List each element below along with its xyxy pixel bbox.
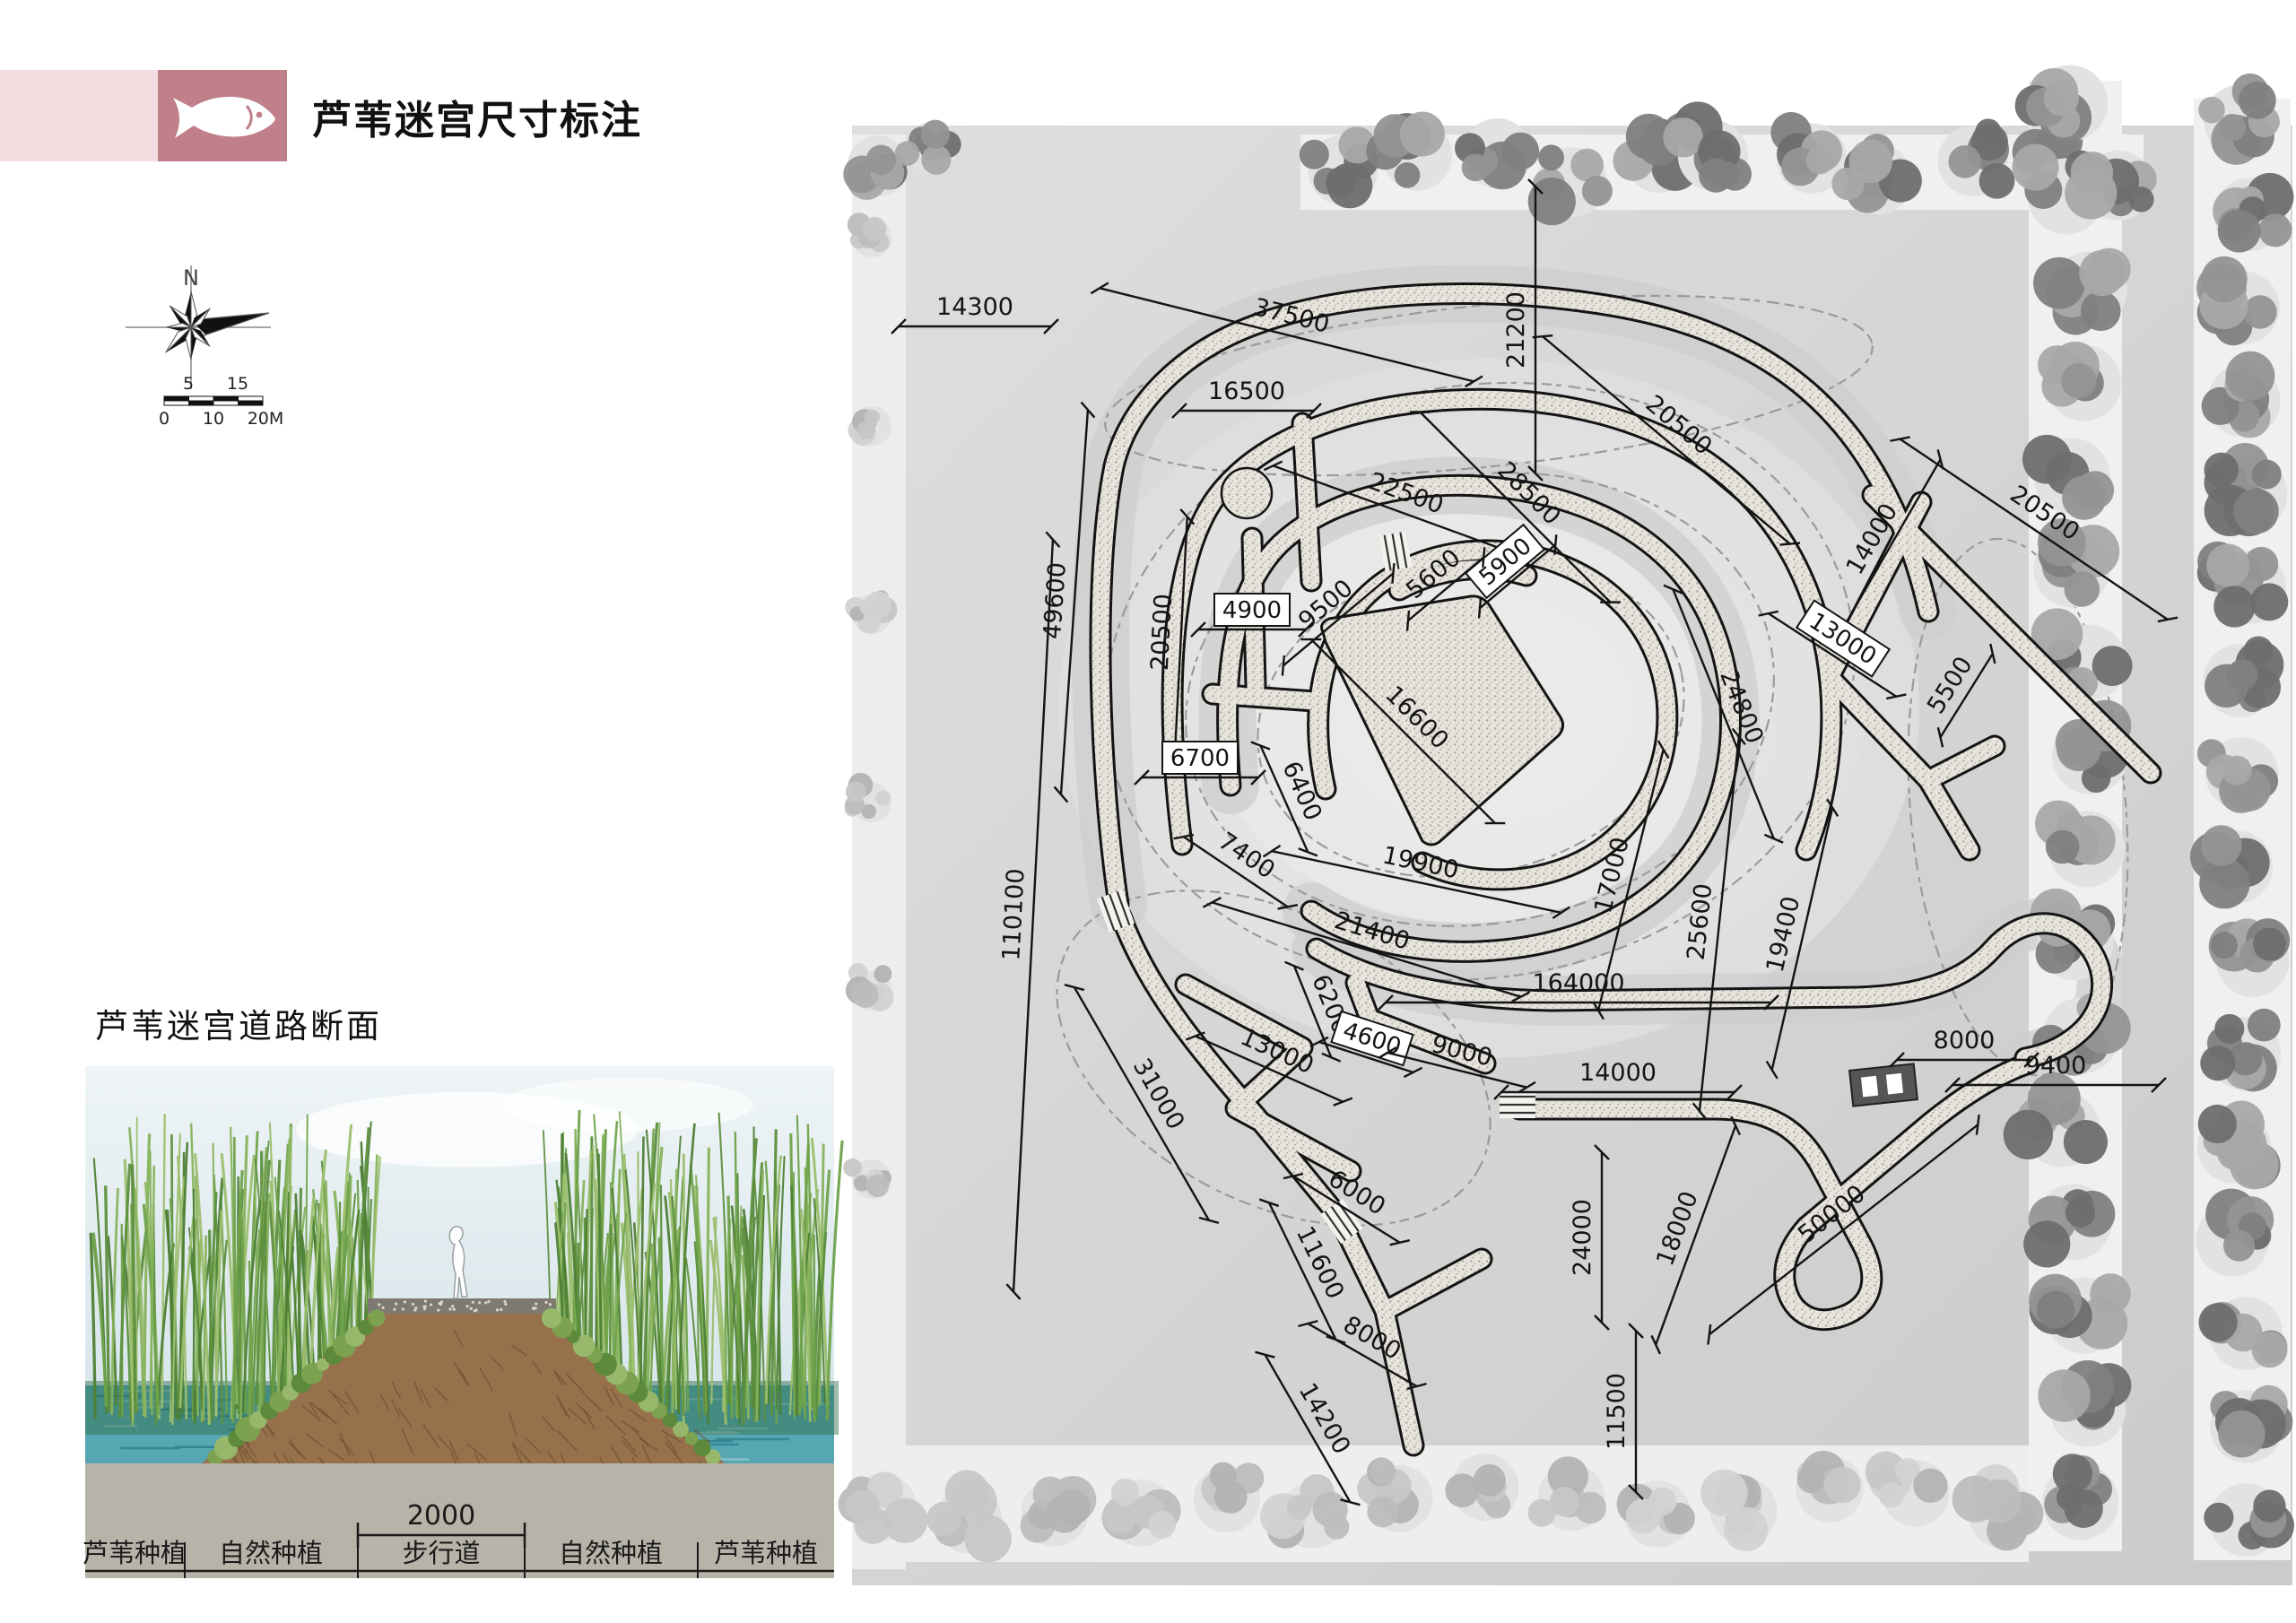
svg-text:4900: 4900 — [1222, 597, 1282, 624]
svg-text:16500: 16500 — [1208, 378, 1285, 405]
svg-text:20500: 20500 — [1146, 593, 1178, 671]
bridge-hatch — [1500, 1091, 1535, 1118]
cloud — [502, 1078, 753, 1132]
svg-text:9400: 9400 — [2025, 1052, 2087, 1080]
svg-text:8000: 8000 — [1934, 1027, 1996, 1055]
svg-text:24000: 24000 — [1569, 1199, 1596, 1276]
maze-plan: 1430037500212001650020500285002250059005… — [838, 65, 2294, 1586]
svg-text:110100: 110100 — [997, 868, 1030, 962]
tree-cluster — [843, 1159, 891, 1199]
svg-text:2000: 2000 — [407, 1500, 475, 1532]
svg-text:10: 10 — [203, 409, 224, 429]
compass-rose: N — [126, 265, 271, 389]
section-image: 2000 芦苇种植 自然种植 步行道 自然种植 芦苇种植 — [83, 1066, 842, 1578]
svg-text:49600: 49600 — [1039, 561, 1072, 640]
svg-text:步行道: 步行道 — [402, 1538, 480, 1568]
svg-text:0: 0 — [159, 409, 170, 429]
svg-text:21200: 21200 — [1502, 291, 1530, 369]
document-page: 芦苇迷宫尺寸标注 芦苇迷宫道路断面 — [0, 0, 2296, 1623]
svg-text:20M: 20M — [248, 409, 284, 429]
svg-text:5: 5 — [183, 374, 194, 394]
pebble-mound — [1222, 468, 1272, 518]
svg-text:11500: 11500 — [1603, 1373, 1631, 1450]
svg-text:15: 15 — [227, 374, 248, 394]
scale-bar: 5 15 0 10 20M — [159, 374, 283, 429]
svg-text:芦苇种植: 芦苇种植 — [83, 1538, 187, 1568]
svg-text:164000: 164000 — [1532, 969, 1624, 997]
svg-text:14300: 14300 — [936, 293, 1013, 321]
scene-canvas: N 5 15 0 10 20M — [0, 0, 2296, 1623]
deck-structure — [1849, 1063, 1918, 1106]
stone-path — [368, 1298, 556, 1314]
svg-text:14000: 14000 — [1579, 1059, 1657, 1087]
svg-text:6700: 6700 — [1170, 745, 1230, 772]
north-label: N — [183, 265, 199, 291]
svg-text:芦苇种植: 芦苇种植 — [714, 1538, 818, 1568]
svg-text:自然种植: 自然种植 — [219, 1538, 323, 1568]
svg-text:自然种植: 自然种植 — [559, 1538, 663, 1568]
